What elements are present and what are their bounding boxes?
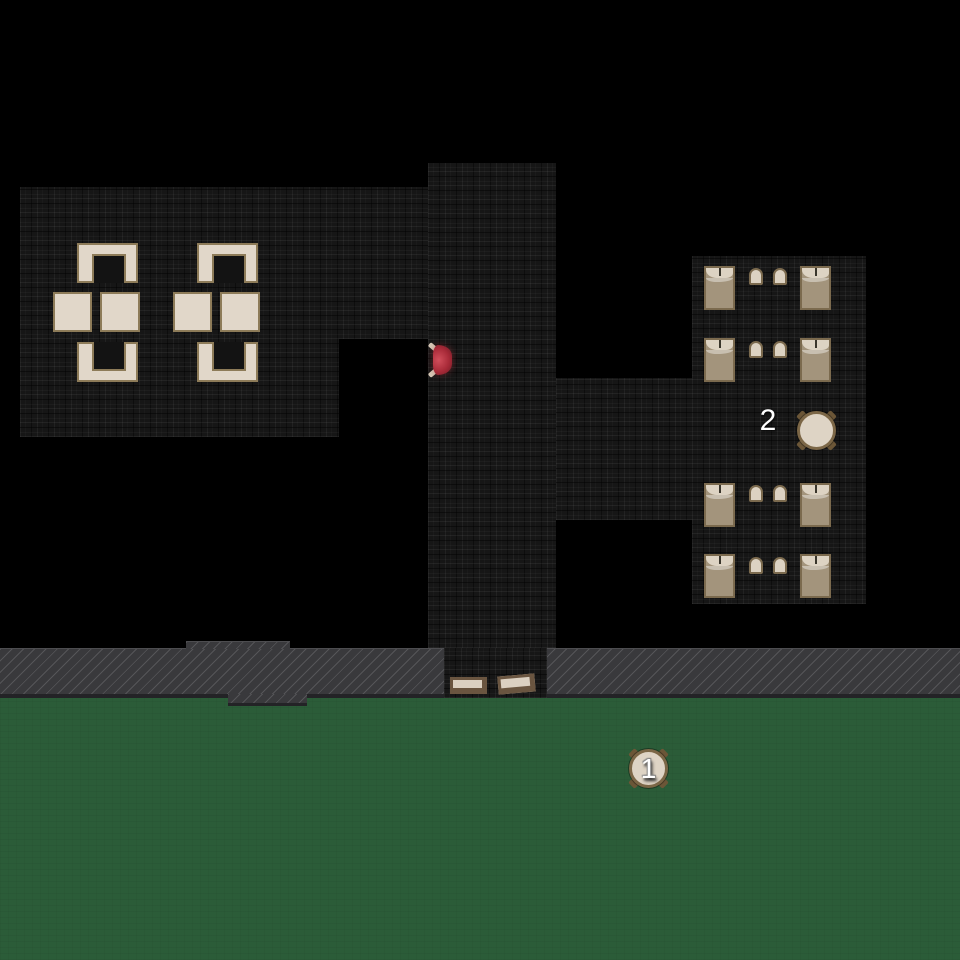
bed [704, 483, 735, 527]
bench-seat-gap [212, 342, 246, 371]
map[interactable]: 1 2 [0, 0, 960, 960]
round-table [797, 411, 836, 450]
bed-hline-icon [719, 268, 721, 276]
objective-1-label[interactable]: 1 [629, 749, 668, 788]
nightstand [749, 341, 763, 358]
nightstand [773, 268, 787, 285]
nightstand [749, 557, 763, 574]
bed-wave-icon [706, 495, 733, 499]
bed [704, 554, 735, 598]
entrance-doormat [450, 677, 487, 694]
bed-hline-icon [815, 268, 817, 276]
bench-seat-gap [92, 342, 126, 371]
bed-hline-icon [815, 485, 817, 493]
bed-wave-icon [706, 566, 733, 570]
bed-hline-icon [719, 556, 721, 564]
nightstand [773, 485, 787, 502]
bed [800, 338, 831, 382]
dining-table [100, 292, 140, 332]
bed-wave-icon [802, 566, 829, 570]
round-table-top [797, 411, 836, 450]
bed [704, 266, 735, 310]
red-door-chair[interactable] [428, 341, 456, 379]
bed-hline-icon [719, 340, 721, 348]
bed-wave-icon [706, 278, 733, 282]
bed [800, 483, 831, 527]
nightstand [749, 485, 763, 502]
objective-2-label[interactable]: 2 [755, 405, 781, 437]
bed-wave-icon [802, 278, 829, 282]
bed-hline-icon [815, 340, 817, 348]
dining-table [173, 292, 212, 332]
furniture-layer: 1 [0, 0, 960, 960]
round-table[interactable]: 1 [629, 749, 668, 788]
bed [800, 266, 831, 310]
dining-bench [77, 342, 138, 382]
entrance-doormat [497, 673, 535, 694]
dining-table [53, 292, 92, 332]
bench-seat-gap [92, 254, 126, 283]
bed [704, 338, 735, 382]
red-chair-body [433, 345, 452, 375]
dining-bench [77, 243, 138, 283]
dining-bench [197, 342, 258, 382]
dining-bench [197, 243, 258, 283]
bench-seat-gap [212, 254, 246, 283]
bed [800, 554, 831, 598]
bed-wave-icon [802, 495, 829, 499]
bed-wave-icon [706, 350, 733, 354]
bed-hline-icon [719, 485, 721, 493]
bed-wave-icon [802, 350, 829, 354]
nightstand [773, 557, 787, 574]
nightstand [773, 341, 787, 358]
dining-table [220, 292, 260, 332]
nightstand [749, 268, 763, 285]
bed-hline-icon [815, 556, 817, 564]
